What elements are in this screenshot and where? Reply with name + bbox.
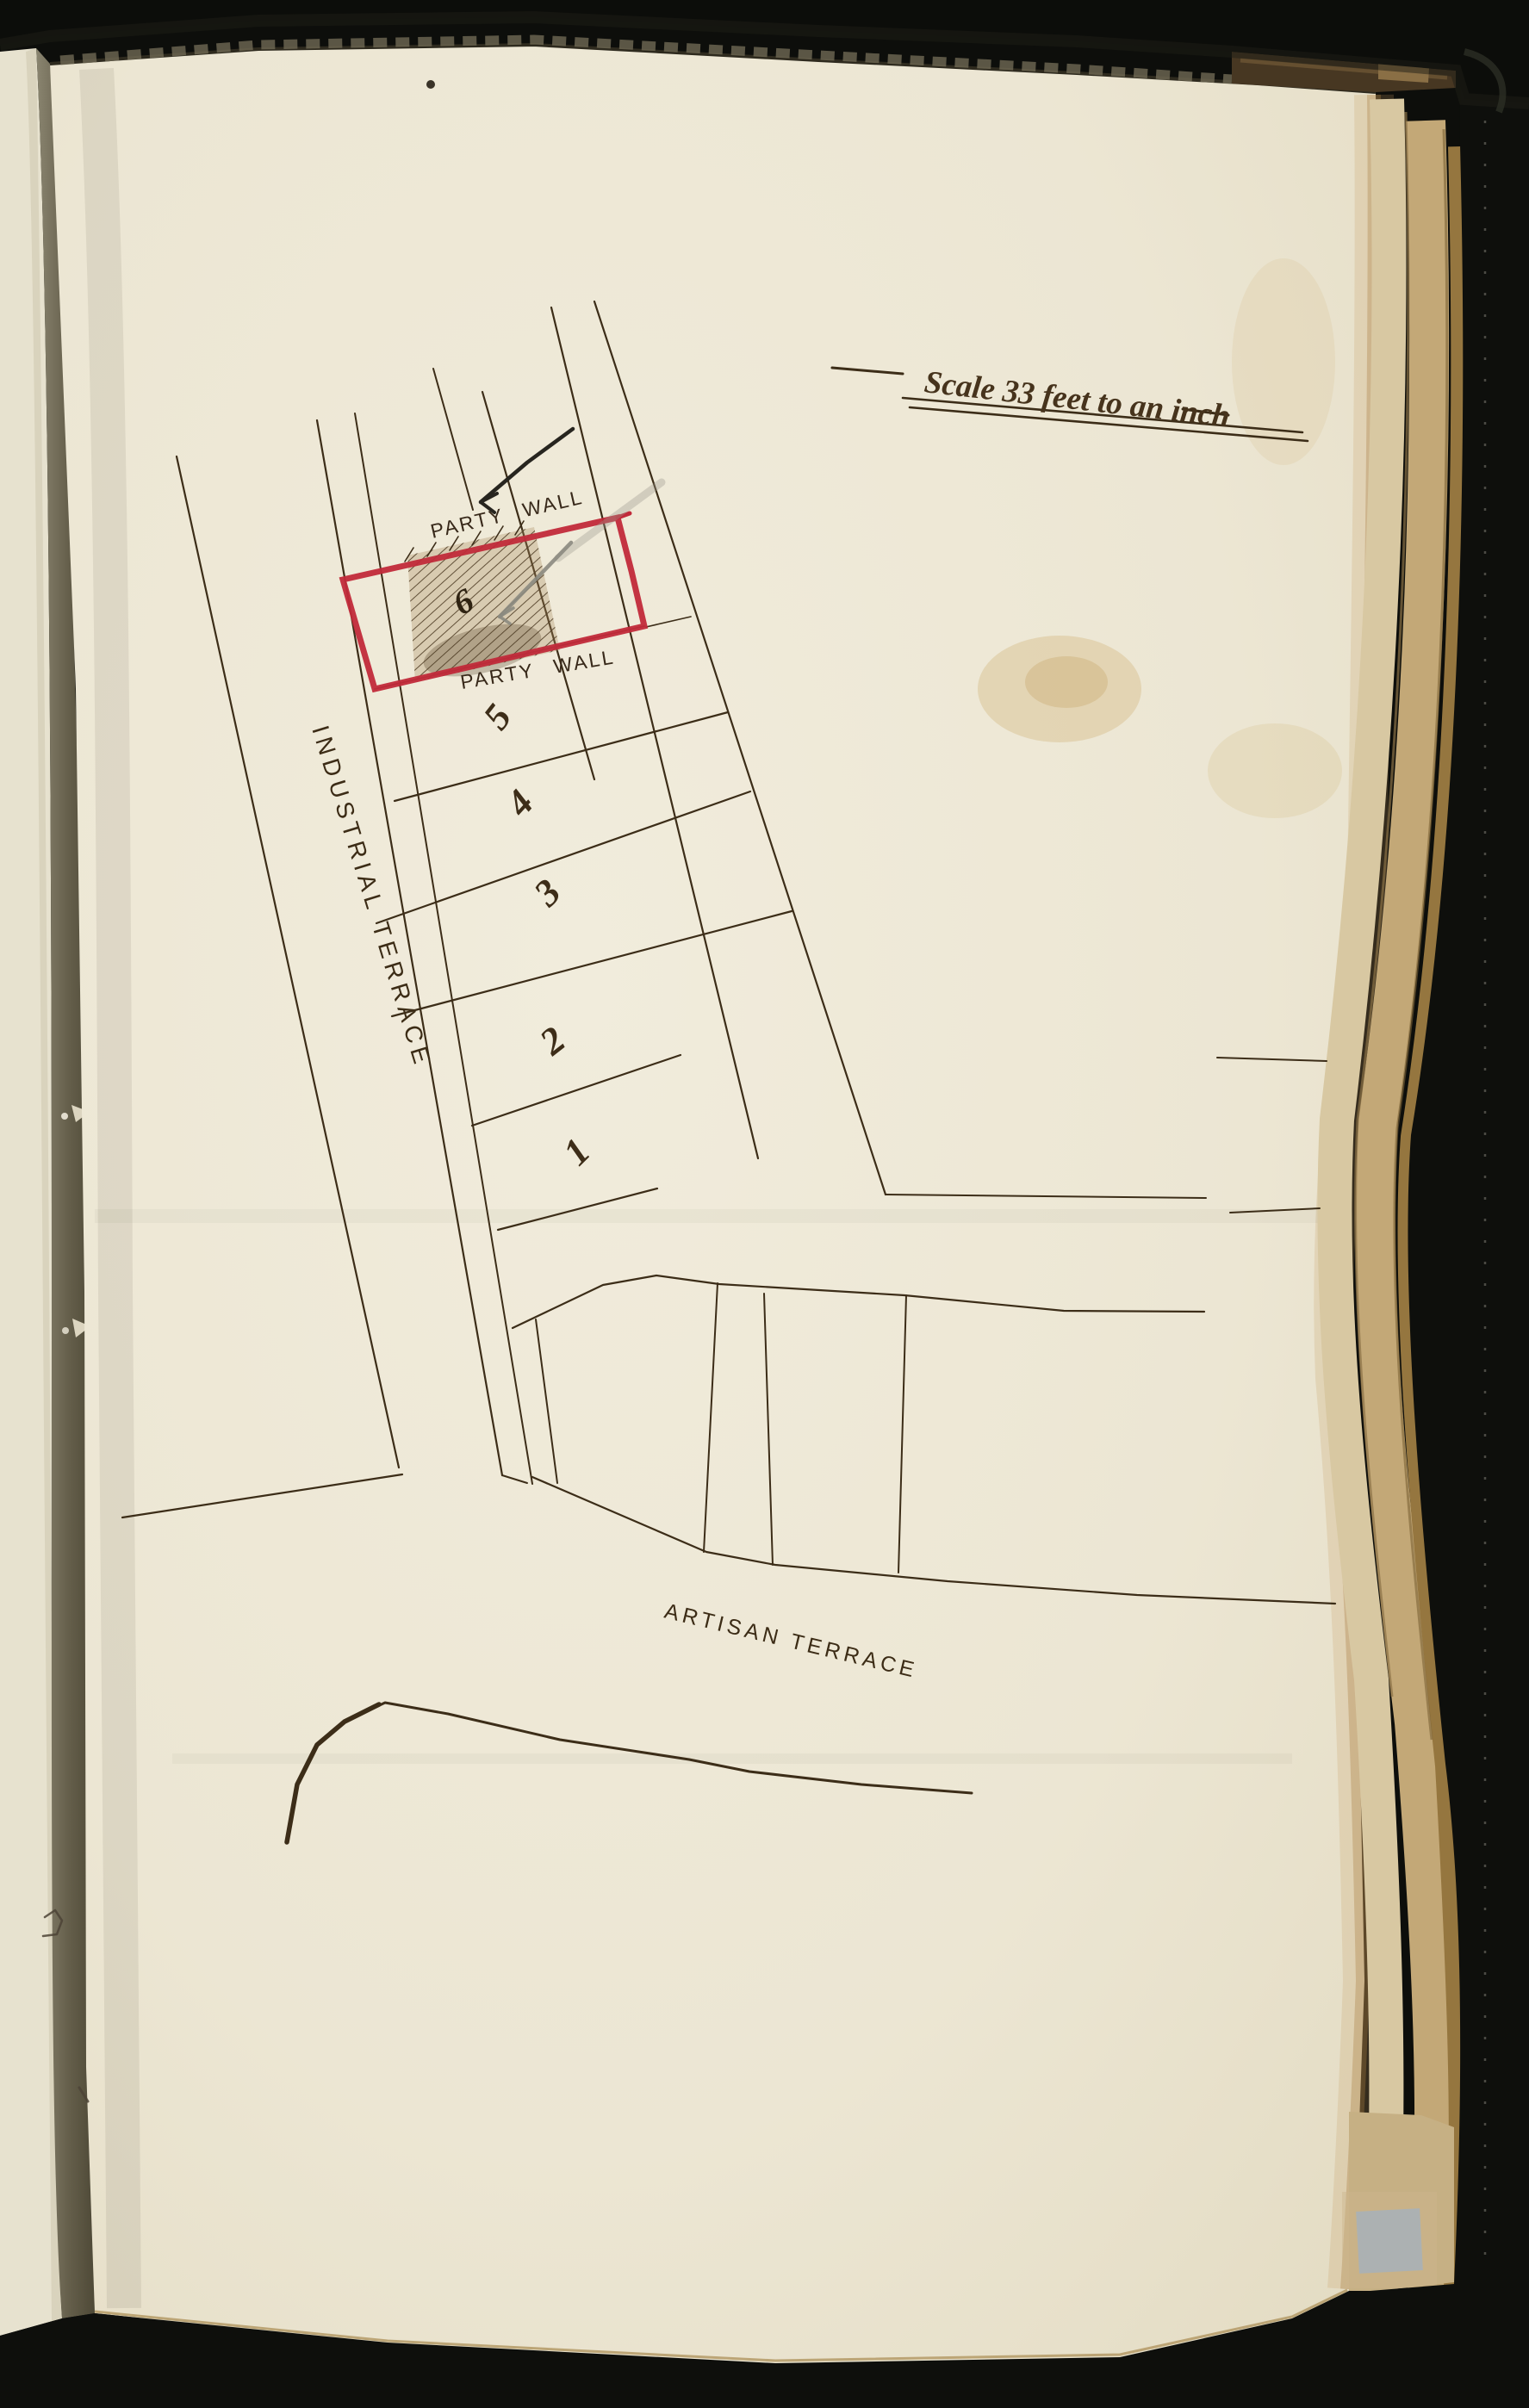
page-stain bbox=[1232, 258, 1335, 465]
estate-plan-page: 654321 Scale 33 feet to an inch INDUSTRI… bbox=[0, 0, 1529, 2408]
tape-overlay bbox=[1342, 2192, 1437, 2288]
book-backdrop bbox=[0, 0, 1529, 2408]
open-ledger-book: 654321 Scale 33 feet to an inch INDUSTRI… bbox=[0, 0, 1529, 2408]
page-stain bbox=[1208, 723, 1342, 818]
